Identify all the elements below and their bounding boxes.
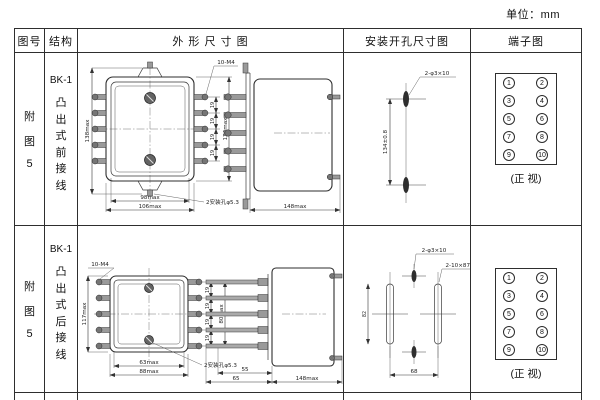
figure-char: 附 xyxy=(24,108,35,124)
row2-outline-cell: 10-M4 117max 19 xyxy=(78,226,344,393)
structure-char: 线 xyxy=(56,178,67,195)
structure-char: 前 xyxy=(56,145,67,162)
dim-label: 106max xyxy=(139,204,163,210)
dim-label: 98max xyxy=(140,195,160,201)
dim-label: 19 xyxy=(210,118,216,124)
terminal-diagram: 1 2 3 4 5 6 7 8 9 10 xyxy=(495,73,557,165)
side-view xyxy=(224,63,340,209)
row1-outline-cell: 138max 19 19 19 19 xyxy=(78,53,344,226)
structure-char: 接 xyxy=(56,161,67,178)
terminal-5: 5 xyxy=(503,308,515,320)
model-label: BK-1 xyxy=(50,75,72,86)
row2-install-cell: 82 68 2-φ3×10 2-10×87 xyxy=(344,226,471,393)
terminal-10: 10 xyxy=(536,344,548,356)
screws-label: 10-M4 xyxy=(217,60,235,66)
dim-label: 148max xyxy=(296,376,320,382)
terminal-4: 4 xyxy=(536,95,548,107)
header-figure-no: 图号 xyxy=(15,29,45,53)
dim-label: 88max xyxy=(139,369,159,375)
terminal-9: 9 xyxy=(503,149,515,161)
structure-char: 凸 xyxy=(56,264,67,281)
dim-label: 117max xyxy=(82,302,88,326)
figure-char: 5 xyxy=(26,158,32,170)
terminal-7: 7 xyxy=(503,131,515,143)
dim-label: 19 xyxy=(205,287,211,293)
structure-char: 式 xyxy=(56,297,67,314)
terminal-6: 6 xyxy=(536,113,548,125)
structure-char: 凸 xyxy=(56,95,67,112)
terminal-1: 1 xyxy=(503,272,515,284)
dim-label: 19 xyxy=(205,303,211,309)
dim-label: 55 xyxy=(241,367,249,373)
structure-char: 式 xyxy=(56,128,67,145)
front-view xyxy=(94,268,204,362)
dim-label: 65 xyxy=(232,376,240,382)
dim-label: 19 xyxy=(210,150,216,156)
dim-label: 63max xyxy=(139,360,159,366)
install-drawing-front-connection: 134±0.8 2-φ3×10 xyxy=(344,53,471,226)
structure-char: 出 xyxy=(56,112,67,129)
terminal-1: 1 xyxy=(503,77,515,89)
terminal-diagram: 1 2 3 4 5 6 7 8 9 10 xyxy=(495,268,557,360)
dim-label: 19 xyxy=(205,319,211,325)
side-view-dimensions: 148max xyxy=(250,179,340,213)
terminal-9: 9 xyxy=(503,344,515,356)
row1-terminal-cell: 1 2 3 4 5 6 7 8 9 10 (正 视) xyxy=(471,53,581,226)
mounting-holes-label: 2安装孔φ5.3 xyxy=(204,361,237,369)
outline-drawing-front-connection: 138max 19 19 19 19 xyxy=(78,53,344,226)
row2-structure: BK-1 凸 出 式 后 接 线 xyxy=(45,226,78,393)
terminal-caption: (正 视) xyxy=(511,171,542,186)
terminal-3: 3 xyxy=(503,95,515,107)
partial-row-cell xyxy=(78,393,344,400)
terminal-2: 2 xyxy=(536,77,548,89)
structure-char: 出 xyxy=(56,281,67,298)
dim-label: 68 xyxy=(410,369,418,375)
dim-label: 134±0.8 xyxy=(383,129,389,154)
figure-char: 5 xyxy=(26,328,32,340)
dim-label: 148max xyxy=(284,204,308,210)
partial-row-cell xyxy=(45,393,78,400)
panel-holes-label: 2-φ3×10 xyxy=(422,248,447,254)
header-install-hole-dimensions: 安装开孔尺寸图 xyxy=(344,29,471,53)
header-structure: 结构 xyxy=(45,29,78,53)
mounting-holes-label: 2安装孔φ5.3 xyxy=(206,198,239,206)
screws-label: 10-M4 xyxy=(91,262,109,268)
figure-char: 附 xyxy=(24,278,35,294)
unit-label: 单位：mm xyxy=(506,6,560,22)
terminal-8: 8 xyxy=(536,131,548,143)
dim-label: 138max xyxy=(85,119,91,143)
figure-char: 图 xyxy=(24,133,35,149)
terminal-8: 8 xyxy=(536,326,548,338)
row1-structure: BK-1 凸 出 式 前 接 线 xyxy=(45,53,78,226)
dim-label: 124max xyxy=(223,117,229,141)
panel-slots-label: 2-10×87 xyxy=(446,263,471,269)
terminal-5: 5 xyxy=(503,113,515,125)
drawing-table: 图号 结构 外 形 尺 寸 图 安装开孔尺寸图 端子图 附 图 5 BK-1 凸… xyxy=(14,28,582,400)
terminal-caption: (正 视) xyxy=(511,366,542,381)
row1-install-cell: 134±0.8 2-φ3×10 xyxy=(344,53,471,226)
terminal-7: 7 xyxy=(503,326,515,338)
terminal-10: 10 xyxy=(536,149,548,161)
side-view xyxy=(206,268,342,366)
dim-label: 19 xyxy=(210,134,216,140)
row2-figure-no: 附 图 5 xyxy=(15,226,45,393)
partial-row-cell xyxy=(471,393,581,400)
dim-label: 19 xyxy=(210,102,216,108)
partial-row-cell xyxy=(344,393,471,400)
structure-char: 接 xyxy=(56,330,67,347)
partial-row-cell xyxy=(15,393,45,400)
terminal-6: 6 xyxy=(536,308,548,320)
header-outline-dimensions: 外 形 尺 寸 图 xyxy=(78,29,344,53)
row2-terminal-cell: 1 2 3 4 5 6 7 8 9 10 (正 视) xyxy=(471,226,581,393)
figure-char: 图 xyxy=(24,303,35,319)
dim-label: 19 xyxy=(205,335,211,341)
terminal-3: 3 xyxy=(503,290,515,302)
front-view-dimensions: 138max 19 19 19 19 xyxy=(85,60,239,212)
structure-char: 后 xyxy=(56,314,67,331)
install-drawing-rear-connection: 82 68 2-φ3×10 2-10×87 xyxy=(344,226,471,393)
panel-holes-label: 2-φ3×10 xyxy=(425,71,450,77)
structure-char: 线 xyxy=(56,347,67,364)
terminal-4: 4 xyxy=(536,290,548,302)
terminal-2: 2 xyxy=(536,272,548,284)
front-view xyxy=(92,62,208,203)
manual-page: 单位：mm 图号 结构 外 形 尺 寸 图 安装开孔尺寸图 端子图 附 图 5 … xyxy=(0,0,600,400)
row1-figure-no: 附 图 5 xyxy=(15,53,45,226)
header-terminal-diagram: 端子图 xyxy=(471,29,581,53)
model-label: BK-1 xyxy=(50,244,72,255)
dim-label: 82 xyxy=(362,311,368,317)
outline-drawing-rear-connection: 10-M4 117max 19 xyxy=(78,226,344,393)
